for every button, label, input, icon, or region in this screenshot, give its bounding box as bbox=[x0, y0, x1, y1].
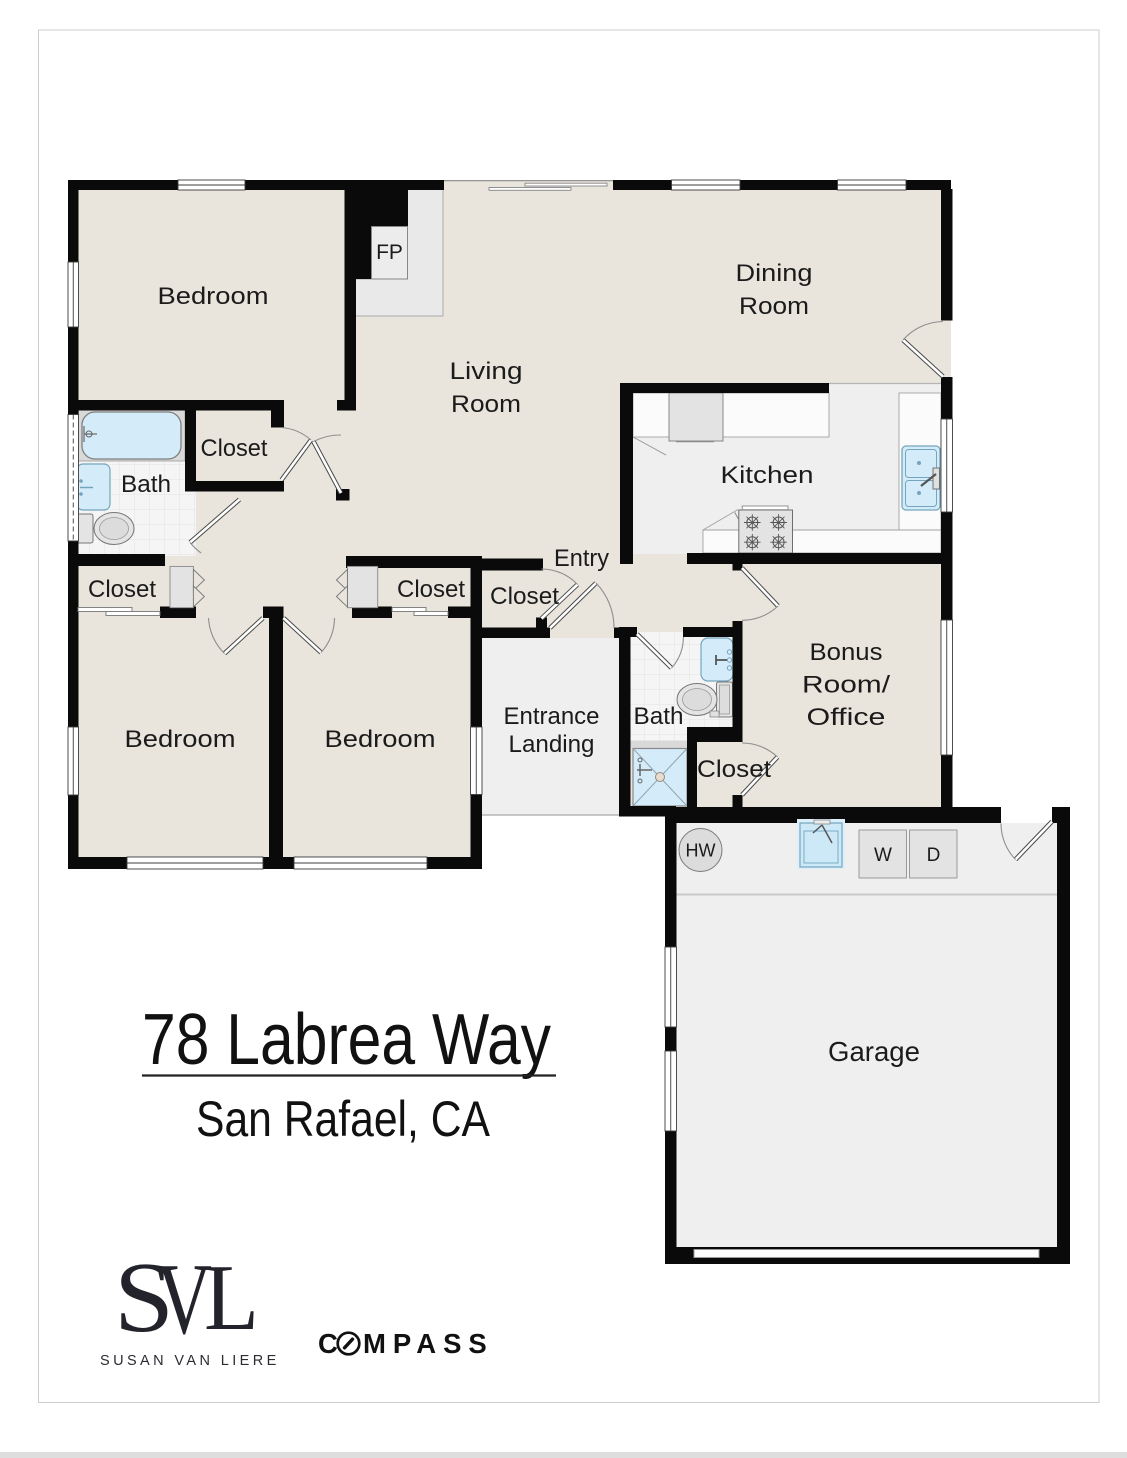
svg-text:Kitchen: Kitchen bbox=[721, 462, 814, 489]
svg-text:Dining: Dining bbox=[736, 260, 813, 287]
svg-text:MPASS: MPASS bbox=[363, 1328, 494, 1359]
svg-text:L: L bbox=[204, 1246, 259, 1350]
svg-text:C: C bbox=[318, 1328, 338, 1359]
svg-text:Bedroom: Bedroom bbox=[158, 283, 269, 310]
svg-text:San Rafael, CA: San Rafael, CA bbox=[196, 1091, 491, 1147]
svg-text:FP: FP bbox=[376, 241, 403, 264]
svg-text:Bedroom: Bedroom bbox=[125, 726, 236, 753]
svg-text:Closet: Closet bbox=[397, 576, 465, 603]
svg-text:Living: Living bbox=[450, 358, 523, 385]
svg-text:Room: Room bbox=[451, 391, 521, 418]
svg-text:Office: Office bbox=[807, 704, 886, 731]
svg-text:Entry: Entry bbox=[554, 545, 609, 572]
svg-text:Bath: Bath bbox=[121, 471, 171, 498]
svg-text:Bedroom: Bedroom bbox=[325, 726, 436, 753]
svg-text:Bath: Bath bbox=[634, 703, 684, 730]
svg-text:Room: Room bbox=[739, 293, 809, 320]
svg-text:Room/: Room/ bbox=[802, 672, 890, 699]
svg-text:Closet: Closet bbox=[88, 576, 156, 603]
svg-text:W: W bbox=[874, 845, 892, 866]
svg-text:Closet: Closet bbox=[201, 435, 268, 462]
svg-text:Entrance: Entrance bbox=[504, 703, 600, 730]
svg-text:Closet: Closet bbox=[697, 756, 771, 783]
svg-text:HW: HW bbox=[686, 841, 716, 861]
svg-text:78 Labrea Way: 78 Labrea Way bbox=[142, 1000, 551, 1080]
svg-text:D: D bbox=[927, 845, 941, 866]
svg-text:Garage: Garage bbox=[828, 1036, 920, 1067]
svg-text:SUSAN VAN LIERE: SUSAN VAN LIERE bbox=[100, 1353, 280, 1369]
svg-text:Landing: Landing bbox=[509, 731, 595, 758]
svg-text:Closet: Closet bbox=[490, 583, 559, 610]
svg-text:Bonus: Bonus bbox=[810, 639, 883, 666]
